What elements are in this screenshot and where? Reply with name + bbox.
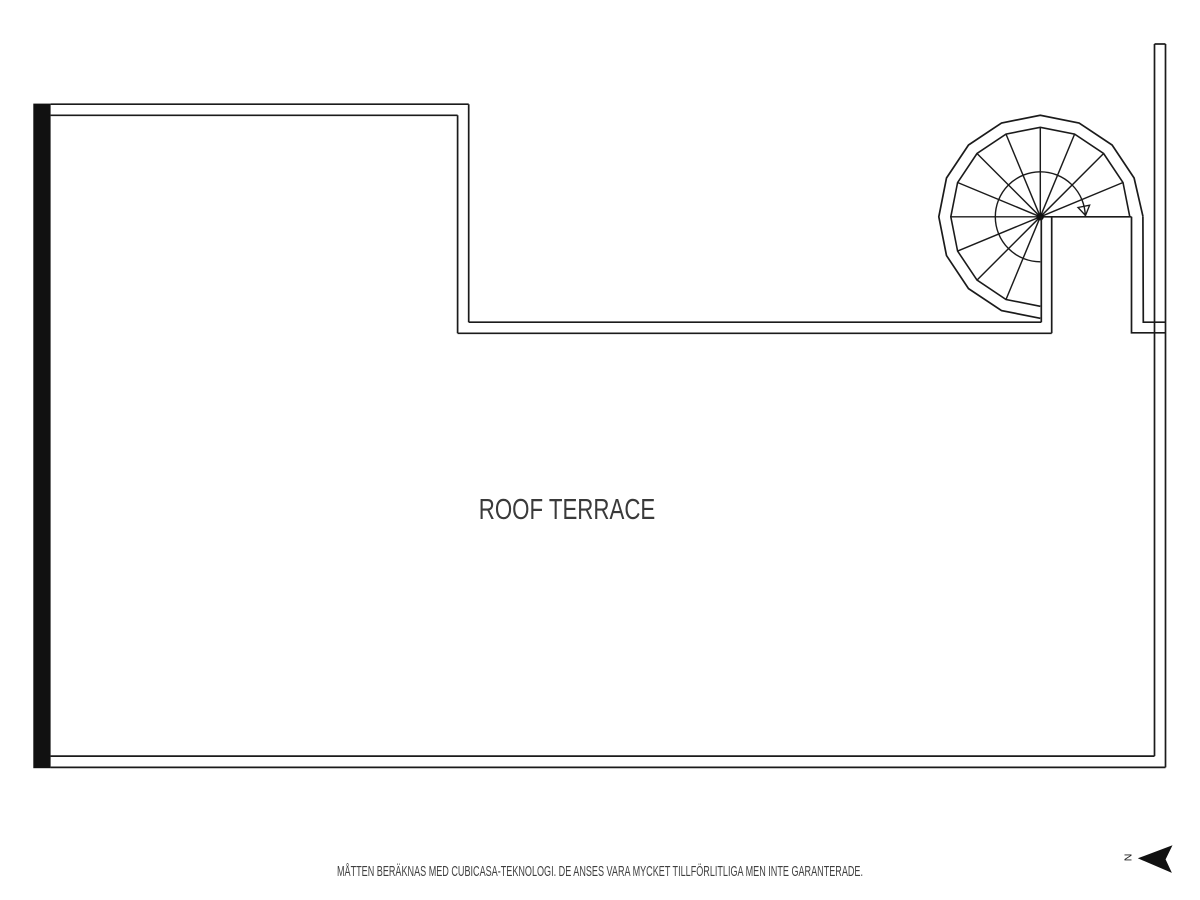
svg-text:N: N <box>1122 854 1134 862</box>
svg-text:ROOF TERRACE: ROOF TERRACE <box>479 494 656 526</box>
svg-text:MÅTTEN BERÄKNAS MED CUBICASA-T: MÅTTEN BERÄKNAS MED CUBICASA-TEKNOLOGI. … <box>337 862 863 880</box>
